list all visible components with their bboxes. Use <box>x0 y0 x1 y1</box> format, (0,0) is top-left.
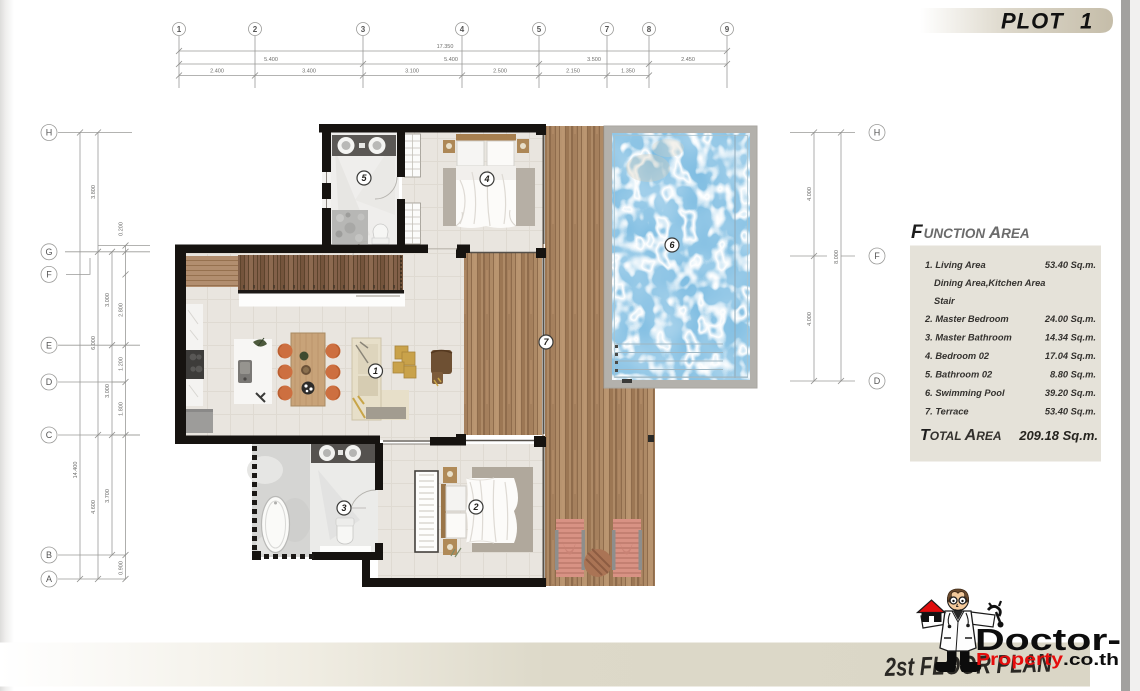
svg-text:E: E <box>46 340 52 350</box>
svg-text:PLOT: PLOT <box>1001 9 1064 34</box>
svg-text:1.350: 1.350 <box>621 69 635 75</box>
svg-text:Dining Area,Kitchen Area: Dining Area,Kitchen Area <box>934 278 1045 288</box>
svg-text:4. Bedroom 02: 4. Bedroom 02 <box>924 351 990 361</box>
svg-text:4.600: 4.600 <box>91 500 97 514</box>
svg-text:3.400: 3.400 <box>302 69 316 75</box>
svg-text:1.200: 1.200 <box>119 357 125 371</box>
svg-text:4.000: 4.000 <box>807 312 813 326</box>
svg-text:6.000: 6.000 <box>91 336 97 350</box>
svg-text:0.200: 0.200 <box>119 222 125 236</box>
svg-text:24.00 Sq.m.: 24.00 Sq.m. <box>1044 314 1096 324</box>
svg-text:2.400: 2.400 <box>210 69 224 75</box>
svg-text:3.500: 3.500 <box>587 57 601 63</box>
svg-text:4.000: 4.000 <box>807 187 813 201</box>
svg-text:D: D <box>874 376 881 386</box>
svg-text:5.400: 5.400 <box>444 57 458 63</box>
svg-text:209.18 Sq.m.: 209.18 Sq.m. <box>1018 428 1098 443</box>
svg-text:6. Swimming Pool: 6. Swimming Pool <box>925 388 1005 398</box>
svg-text:F: F <box>874 251 880 261</box>
svg-text:1.800: 1.800 <box>119 402 125 416</box>
svg-text:3.000: 3.000 <box>105 384 111 398</box>
svg-text:39.20 Sq.m.: 39.20 Sq.m. <box>1045 388 1096 398</box>
svg-text:D: D <box>46 377 53 387</box>
svg-text:17.04 Sq.m.: 17.04 Sq.m. <box>1045 351 1096 361</box>
svg-text:2: 2 <box>253 25 258 34</box>
svg-text:53.40 Sq.m.: 53.40 Sq.m. <box>1045 260 1096 270</box>
svg-text:B: B <box>46 550 52 560</box>
svg-text:3. Master Bathroom: 3. Master Bathroom <box>925 333 1012 343</box>
svg-text:1: 1 <box>177 25 182 34</box>
svg-text:G: G <box>45 247 52 257</box>
svg-text:2: 2 <box>472 502 478 512</box>
svg-text:5.400: 5.400 <box>264 57 278 63</box>
svg-text:2.800: 2.800 <box>119 303 125 317</box>
svg-text:2. Master Bedroom: 2. Master Bedroom <box>924 314 1009 324</box>
svg-text:3.000: 3.000 <box>105 293 111 307</box>
svg-text:TOTAL AREA: TOTAL AREA <box>920 427 1002 444</box>
svg-text:F: F <box>46 270 52 280</box>
svg-text:53.40 Sq.m.: 53.40 Sq.m. <box>1045 407 1096 417</box>
svg-text:7: 7 <box>605 25 610 34</box>
svg-text:4: 4 <box>460 25 465 34</box>
svg-text:5: 5 <box>537 25 542 34</box>
svg-text:3.800: 3.800 <box>91 185 97 199</box>
svg-text:Property: Property <box>976 649 1063 669</box>
svg-text:1: 1 <box>1080 9 1092 34</box>
svg-text:5. Bathroom 02: 5. Bathroom 02 <box>925 370 993 380</box>
svg-text:1. Living Area: 1. Living Area <box>925 260 986 270</box>
svg-text:14.400: 14.400 <box>73 462 79 479</box>
svg-text:3: 3 <box>341 503 346 513</box>
svg-text:C: C <box>46 430 53 440</box>
svg-text:4: 4 <box>483 174 489 184</box>
svg-text:3.100: 3.100 <box>405 69 419 75</box>
svg-text:8.000: 8.000 <box>834 250 840 264</box>
svg-text:FUNCTION AREA: FUNCTION AREA <box>911 222 1030 243</box>
svg-text:9: 9 <box>725 25 730 34</box>
svg-text:Stair: Stair <box>934 296 956 306</box>
svg-text:2.500: 2.500 <box>493 69 507 75</box>
svg-text:7. Terrace: 7. Terrace <box>925 407 969 417</box>
svg-text:1: 1 <box>373 366 378 376</box>
svg-text:2.450: 2.450 <box>681 57 695 63</box>
svg-text:3: 3 <box>361 25 366 34</box>
svg-text:2.150: 2.150 <box>566 69 580 75</box>
svg-text:3.700: 3.700 <box>105 489 111 503</box>
svg-text:17.350: 17.350 <box>437 44 454 50</box>
svg-text:14.34 Sq.m.: 14.34 Sq.m. <box>1045 333 1096 343</box>
svg-text:8.80 Sq.m.: 8.80 Sq.m. <box>1050 370 1096 380</box>
svg-text:8: 8 <box>647 25 652 34</box>
svg-text:H: H <box>874 128 881 138</box>
svg-text:0.900: 0.900 <box>119 561 125 575</box>
svg-text:H: H <box>46 128 53 138</box>
svg-text:A: A <box>46 574 52 584</box>
svg-text:.co.th: .co.th <box>1063 651 1119 669</box>
